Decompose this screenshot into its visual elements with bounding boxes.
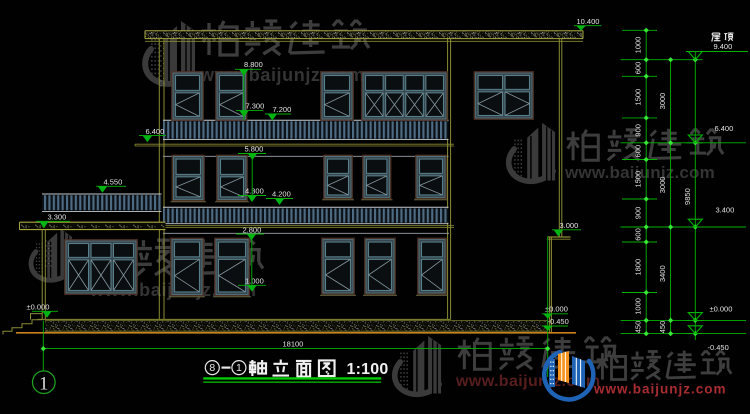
svg-text:1500: 1500 xyxy=(634,171,643,188)
svg-text:900: 900 xyxy=(634,124,643,137)
svg-text:4.550: 4.550 xyxy=(104,178,123,187)
svg-text:450: 450 xyxy=(634,321,643,334)
svg-text:600: 600 xyxy=(634,145,643,158)
svg-text:1: 1 xyxy=(236,362,242,374)
svg-text:3.000: 3.000 xyxy=(560,221,579,230)
svg-text:7.200: 7.200 xyxy=(273,105,292,114)
svg-text:1.000: 1.000 xyxy=(245,277,264,286)
svg-text:1: 1 xyxy=(39,374,49,395)
svg-text:±0.000: ±0.000 xyxy=(27,303,50,312)
svg-text:1500: 1500 xyxy=(634,89,643,106)
svg-text:9.400: 9.400 xyxy=(714,42,733,51)
svg-text:8: 8 xyxy=(209,362,215,374)
svg-text:3.400: 3.400 xyxy=(716,206,735,215)
svg-text:600: 600 xyxy=(634,62,643,75)
svg-text:4.200: 4.200 xyxy=(272,190,291,199)
svg-text:7.300: 7.300 xyxy=(246,102,265,111)
svg-text:-0.450: -0.450 xyxy=(548,317,569,326)
svg-text:9850: 9850 xyxy=(683,188,692,205)
svg-text:3.300: 3.300 xyxy=(48,213,67,222)
svg-text:6.400: 6.400 xyxy=(146,127,165,136)
svg-text:1000: 1000 xyxy=(634,298,643,315)
svg-text:18100: 18100 xyxy=(283,340,304,349)
svg-text:±0.000: ±0.000 xyxy=(710,305,733,314)
svg-text:2.800: 2.800 xyxy=(243,226,262,235)
svg-text:1000: 1000 xyxy=(634,37,643,54)
svg-text:3000: 3000 xyxy=(658,93,667,110)
svg-text:3000: 3000 xyxy=(658,177,667,194)
svg-text:10.400: 10.400 xyxy=(577,17,600,26)
svg-text:3400: 3400 xyxy=(658,265,667,282)
svg-text:6.400: 6.400 xyxy=(715,124,734,133)
svg-text:-0.450: -0.450 xyxy=(708,343,729,352)
svg-text:450: 450 xyxy=(658,321,667,334)
svg-text:1:100: 1:100 xyxy=(347,361,389,378)
svg-text:www.baijunjz.com: www.baijunjz.com xyxy=(593,382,727,397)
svg-text:5.800: 5.800 xyxy=(245,145,264,154)
svg-text:900: 900 xyxy=(634,207,643,220)
svg-text:8.800: 8.800 xyxy=(244,60,263,69)
svg-text:±0.000: ±0.000 xyxy=(545,305,568,314)
svg-text:600: 600 xyxy=(634,228,643,241)
svg-text:4.300: 4.300 xyxy=(245,187,264,196)
svg-text:1800: 1800 xyxy=(634,259,643,276)
